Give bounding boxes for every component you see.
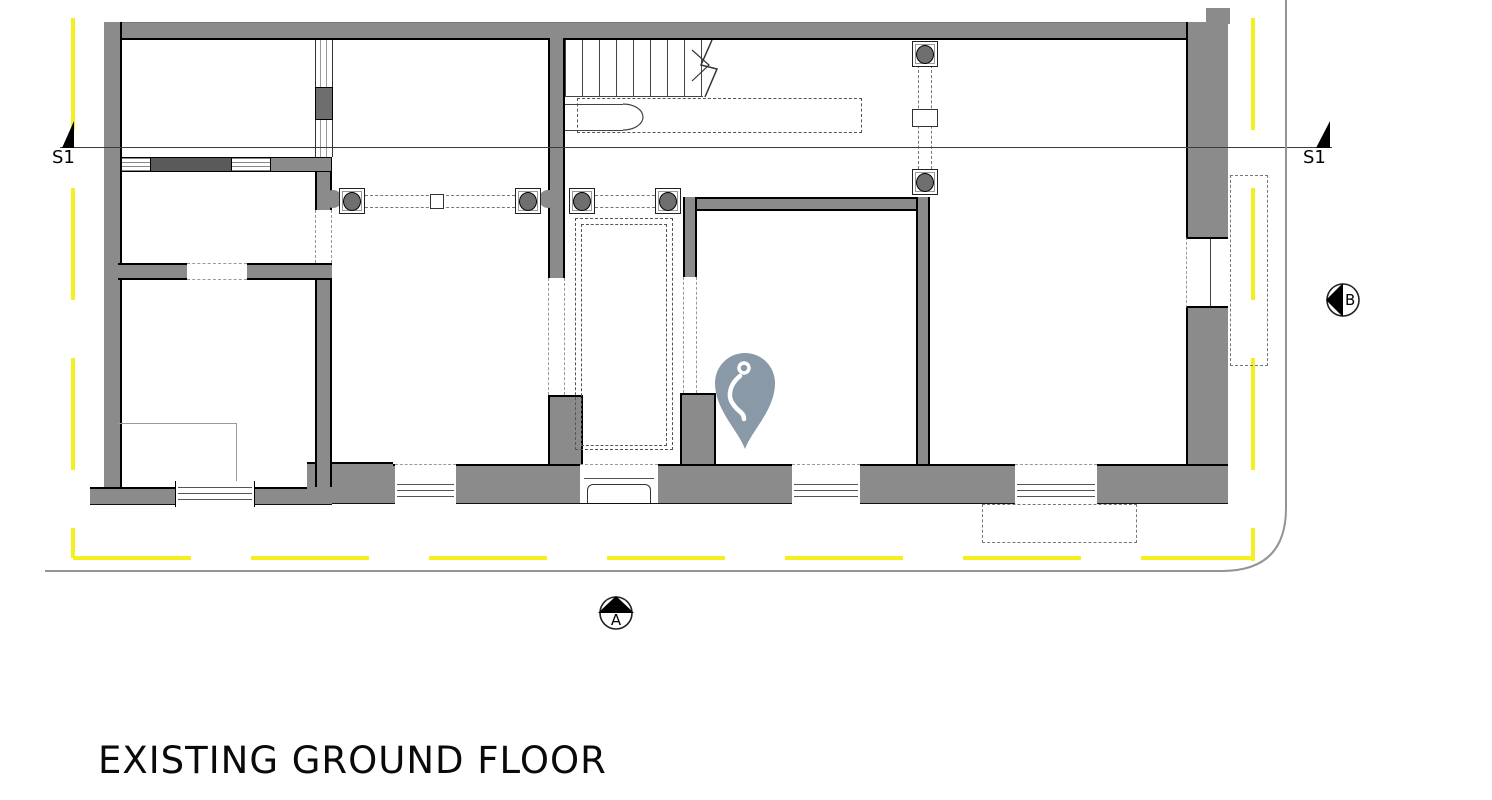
wall-top bbox=[104, 22, 1228, 40]
column-circle bbox=[916, 45, 934, 64]
window-bottom-3 bbox=[792, 464, 860, 504]
elevation-label-b: B bbox=[1345, 291, 1355, 309]
door-opening-v2 bbox=[548, 278, 565, 395]
door-opening-center-room bbox=[683, 277, 697, 393]
section-label-right: S1 bbox=[1303, 149, 1326, 167]
right-wall-window bbox=[1186, 237, 1228, 308]
stair-rail-top bbox=[565, 104, 623, 105]
column bbox=[515, 188, 541, 214]
stair-treads bbox=[565, 40, 703, 97]
wall-end-cap bbox=[539, 190, 557, 208]
column-circle bbox=[659, 192, 677, 211]
wall-divider-pier bbox=[150, 157, 232, 172]
beam-joint bbox=[430, 194, 444, 209]
exterior-feature-right bbox=[1230, 175, 1268, 366]
wall-v2 bbox=[548, 38, 565, 278]
page-title: EXISTING GROUND FLOOR bbox=[98, 739, 607, 782]
window-glass-lines bbox=[397, 484, 454, 501]
flue-block bbox=[315, 87, 333, 120]
section-line bbox=[60, 147, 1332, 148]
column bbox=[912, 169, 938, 195]
beam-dashed bbox=[595, 195, 655, 208]
section-cut-triangle-icon bbox=[1316, 121, 1330, 148]
window-bottom-2 bbox=[395, 464, 456, 504]
door-opening-wall-c bbox=[187, 263, 247, 280]
center-room-wall-right bbox=[916, 197, 930, 464]
column-circle bbox=[573, 192, 591, 211]
exterior-porch bbox=[982, 504, 1137, 543]
column-circle bbox=[916, 173, 934, 192]
entrance-door-opening bbox=[580, 464, 658, 503]
center-room-wall-top bbox=[683, 197, 930, 211]
elevation-arrow-left-icon bbox=[1326, 283, 1343, 317]
window-bottom-4 bbox=[1015, 464, 1097, 504]
column bbox=[655, 188, 681, 214]
stair-break-line bbox=[701, 40, 717, 97]
window-bottom-1 bbox=[175, 481, 255, 507]
floor-plan-canvas: S1 S1 A B EXISTING GROUND FLOOR bbox=[0, 0, 1492, 800]
wall-v1-lower bbox=[315, 280, 332, 487]
boundary-line-left bbox=[71, 18, 75, 558]
section-label-left: S1 bbox=[52, 149, 75, 167]
door-opening-v1 bbox=[315, 210, 332, 263]
wall-divider-corner bbox=[270, 157, 332, 172]
window-glass-lines bbox=[794, 484, 858, 501]
column bbox=[569, 188, 595, 214]
boundary-line-bottom bbox=[73, 556, 1254, 560]
center-room-pier bbox=[680, 393, 716, 464]
column-circle bbox=[343, 192, 361, 211]
platform-outline bbox=[118, 423, 237, 487]
stair-void-inner bbox=[581, 224, 667, 446]
column-circle bbox=[519, 192, 537, 211]
location-pin-icon[interactable] bbox=[715, 353, 775, 449]
beam-joint bbox=[912, 109, 938, 127]
window-glass-lines bbox=[178, 487, 252, 504]
column bbox=[912, 41, 938, 67]
entrance-step bbox=[587, 484, 651, 503]
column bbox=[339, 188, 365, 214]
stair-rail-bottom bbox=[565, 130, 623, 131]
elevation-label-a: A bbox=[601, 611, 631, 629]
window-glass-lines bbox=[1017, 484, 1095, 501]
center-room-wall-left bbox=[683, 197, 697, 277]
